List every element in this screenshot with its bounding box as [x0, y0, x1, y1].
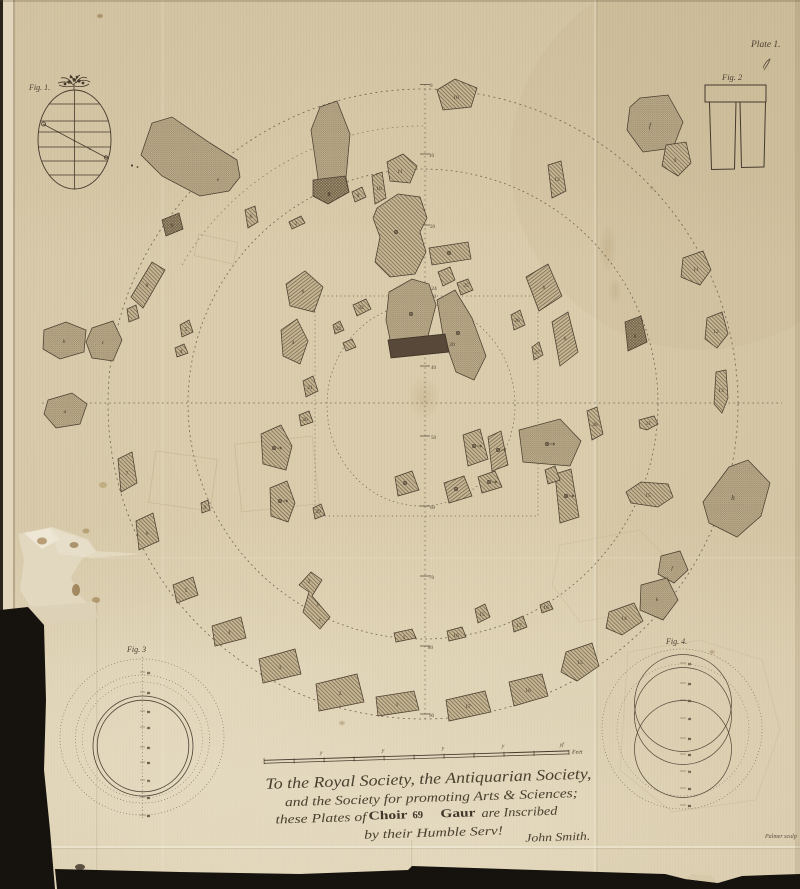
svg-text:1: 1 [396, 702, 399, 708]
svg-text:15: 15 [577, 660, 583, 666]
svg-text:9: 9 [674, 158, 677, 164]
svg-text:20: 20 [688, 682, 692, 686]
svg-text:12: 12 [713, 329, 719, 335]
svg-text:20: 20 [147, 691, 151, 695]
svg-text:32: 32 [358, 305, 364, 311]
svg-text:9: 9 [357, 193, 360, 199]
svg-text:Gaur: Gaur [440, 805, 476, 820]
svg-text:90: 90 [688, 804, 692, 808]
svg-text:80: 80 [147, 796, 151, 800]
svg-text:b: b [63, 339, 66, 345]
svg-text:25: 25 [463, 283, 469, 289]
svg-text:17: 17 [465, 704, 471, 710]
svg-text:70: 70 [429, 576, 435, 581]
svg-text:40: 40 [147, 726, 151, 730]
svg-text:h: h [543, 285, 546, 291]
svg-text:8: 8 [634, 334, 637, 340]
svg-text:16: 16 [543, 605, 549, 611]
svg-text:40: 40 [688, 717, 692, 721]
svg-text:9: 9 [171, 223, 174, 229]
svg-text:90: 90 [429, 714, 435, 719]
svg-text:Fig. 2: Fig. 2 [721, 72, 743, 82]
svg-text:15: 15 [479, 612, 485, 618]
svg-text:12: 12 [554, 177, 560, 183]
svg-text:4: 4 [180, 349, 183, 355]
svg-text:21: 21 [307, 385, 313, 391]
svg-text:90: 90 [147, 814, 151, 818]
svg-text:are Inscribed: are Inscribed [481, 804, 558, 820]
svg-text:30: 30 [147, 710, 151, 714]
svg-text:Fig. 4.: Fig. 4. [665, 637, 687, 646]
svg-text:27: 27 [534, 350, 540, 356]
svg-text:20: 20 [449, 342, 455, 348]
svg-text:14: 14 [621, 616, 627, 622]
svg-text:50: 50 [688, 737, 692, 741]
svg-text:20: 20 [302, 417, 308, 423]
svg-text:9: 9 [204, 505, 207, 511]
svg-text:h: h [302, 289, 305, 295]
svg-text:Choir: Choir [368, 807, 408, 822]
svg-text:16: 16 [453, 633, 459, 639]
svg-text:6: 6 [146, 531, 149, 537]
svg-text:1: 1 [403, 635, 406, 641]
svg-text:21: 21 [645, 421, 651, 427]
svg-text:5: 5 [185, 327, 188, 333]
svg-text:60: 60 [688, 753, 692, 757]
svg-text:24: 24 [431, 286, 437, 292]
svg-text:69: 69 [412, 810, 423, 821]
svg-text:50: 50 [147, 746, 151, 750]
svg-text:28: 28 [592, 422, 598, 428]
svg-text:70: 70 [688, 770, 692, 774]
svg-text:Fig. 1.: Fig. 1. [28, 83, 50, 92]
svg-text:16: 16 [525, 688, 531, 694]
svg-text:60: 60 [430, 506, 436, 511]
svg-text:20: 20 [430, 225, 436, 230]
svg-text:2: 2 [308, 579, 311, 585]
svg-text:11: 11 [693, 267, 699, 273]
svg-text:10: 10 [376, 186, 382, 192]
svg-text:8: 8 [146, 283, 149, 289]
svg-text:h: h [564, 336, 567, 342]
svg-text:80: 80 [428, 646, 434, 651]
svg-text:26: 26 [514, 318, 520, 324]
svg-text:5: 5 [185, 588, 188, 594]
svg-text:8: 8 [328, 192, 331, 198]
svg-text:13: 13 [718, 388, 724, 394]
svg-text:3: 3 [279, 665, 282, 671]
svg-text:a: a [64, 409, 67, 415]
svg-text:Plate 1.: Plate 1. [750, 40, 781, 50]
svg-text:10: 10 [688, 662, 692, 666]
svg-text:4: 4 [292, 340, 295, 346]
svg-text:40: 40 [431, 366, 437, 371]
svg-text:60: 60 [147, 761, 151, 765]
svg-text:Fig. 3: Fig. 3 [126, 645, 146, 654]
svg-text:10: 10 [147, 671, 151, 675]
svg-text:6: 6 [250, 214, 253, 220]
svg-text:70: 70 [147, 779, 151, 783]
svg-text:10: 10 [453, 95, 459, 101]
svg-text:h: h [731, 494, 735, 502]
svg-text:50: 50 [431, 436, 437, 441]
svg-text:80: 80 [688, 787, 692, 791]
svg-text:these Plates of: these Plates of [275, 810, 368, 827]
svg-text:Palmer sculp: Palmer sculp [764, 834, 797, 840]
svg-text:15: 15 [645, 493, 651, 499]
svg-text:29: 29 [315, 509, 321, 515]
svg-text:John Smith.: John Smith. [525, 831, 590, 845]
svg-text:22: 22 [335, 326, 341, 332]
svg-text:2: 2 [295, 221, 298, 227]
svg-text:30: 30 [688, 699, 692, 703]
svg-text:4: 4 [228, 630, 231, 636]
svg-text:17: 17 [516, 623, 522, 629]
svg-text:Feet: Feet [571, 750, 583, 756]
svg-text:7: 7 [126, 471, 129, 477]
svg-text:10: 10 [429, 154, 435, 159]
svg-text:11: 11 [397, 169, 403, 175]
svg-text:2: 2 [339, 691, 342, 697]
